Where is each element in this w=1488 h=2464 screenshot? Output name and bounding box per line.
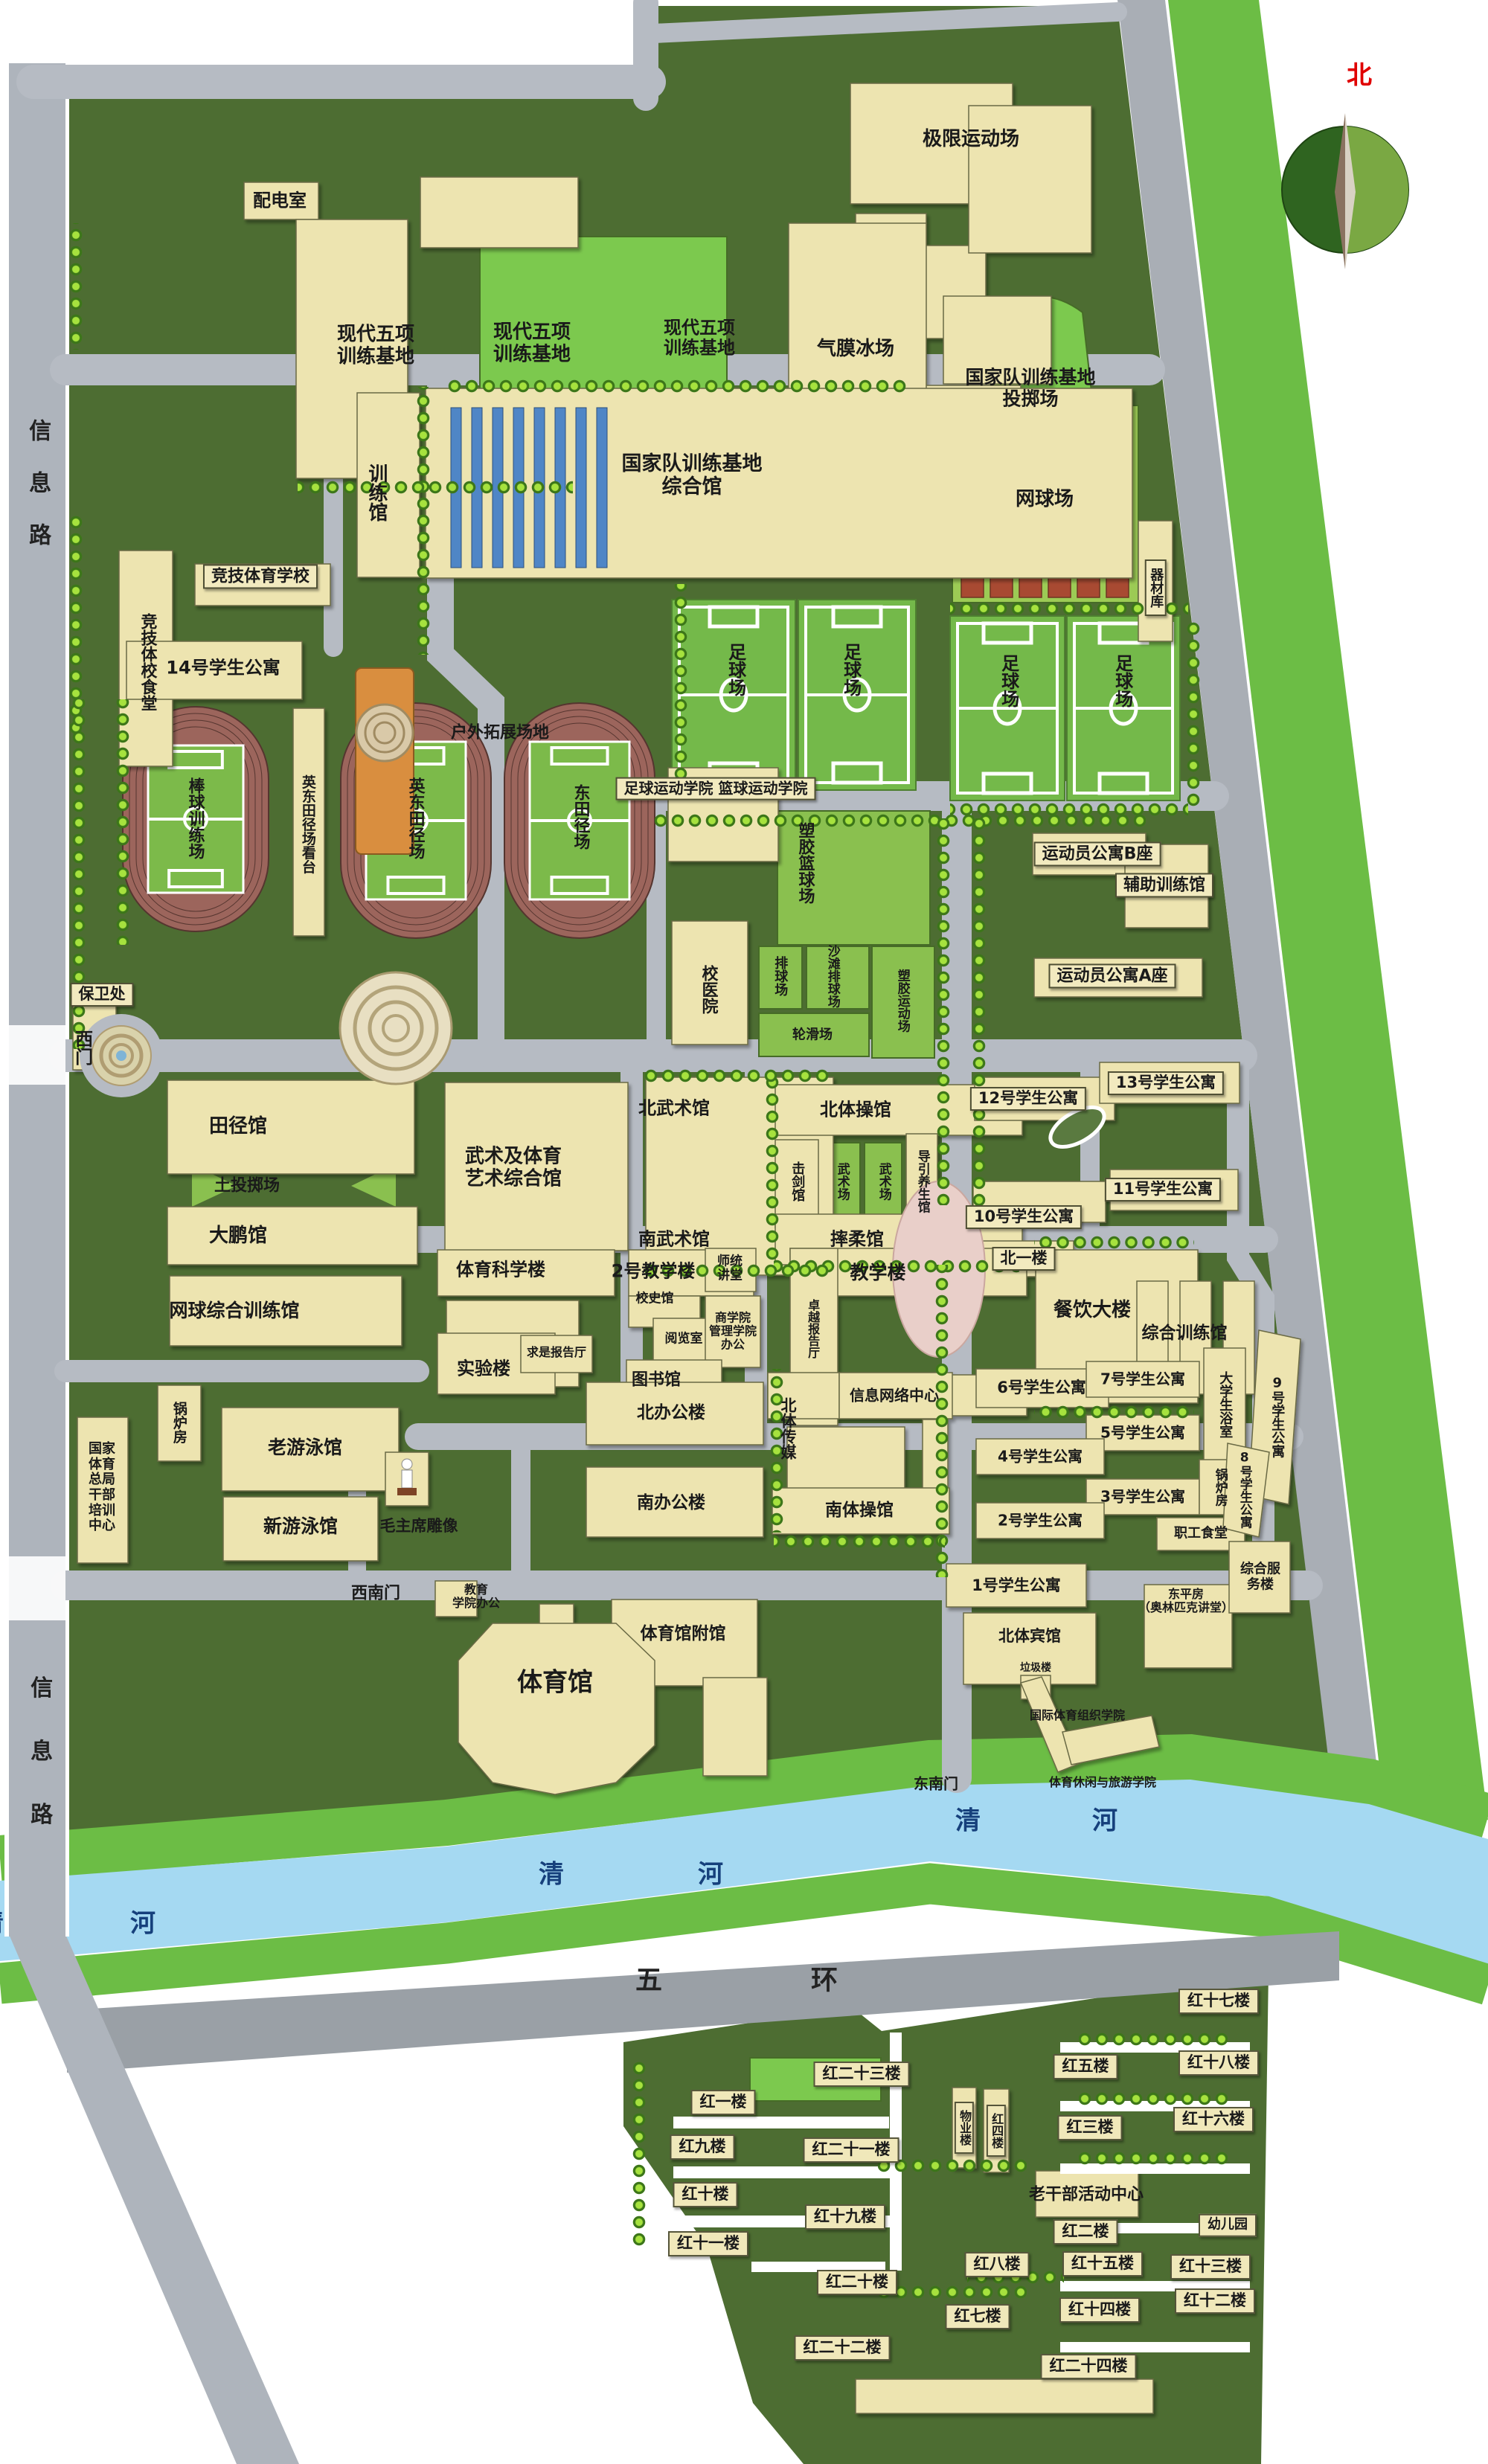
tree-row — [1034, 1235, 1194, 1250]
hong3-lou-label: 红三楼 — [1058, 2115, 1123, 2140]
hong16-lou-label: 红十六楼 — [1173, 2107, 1254, 2132]
tree-row — [934, 1265, 949, 1577]
guojiadui-zongheguan-label: 国家队训练基地 综合馆 — [622, 453, 763, 499]
yuelanshi-label: 阅览室 — [665, 1332, 703, 1346]
tree-row — [774, 1534, 945, 1549]
qiushi-baogaoting-label: 求是报告厅 — [527, 1346, 586, 1359]
xunlianguan-label: 训练馆 — [365, 463, 387, 522]
no9-gongyu-label: 9号学生公寓 — [1269, 1376, 1285, 1458]
no4-gongyu-label: 4号学生公寓 — [998, 1448, 1083, 1466]
zhigong-shitang-label: 职工食堂 — [1174, 1527, 1228, 1542]
hong4-lou-label: 红四楼 — [987, 2105, 1006, 2157]
amphitheater — [340, 972, 452, 1084]
bei-bangonglou-label: 北办公楼 — [637, 1403, 705, 1422]
tree-row — [1079, 2152, 1228, 2165]
tree-row — [936, 818, 951, 1205]
yingdong-kantai-label: 英东田径场看台 — [299, 775, 315, 874]
wuyelou-label: 物业楼 — [955, 2102, 974, 2154]
qimo-bingchang-label: 气膜冰场 — [817, 339, 894, 361]
fuzhu-xunlianguan-label: 辅助训练馆 — [1115, 873, 1213, 897]
bei-ticaoguan-label: 北体操馆 — [820, 1100, 891, 1120]
climbing-wall — [356, 668, 414, 854]
hong20-lou-label: 红二十楼 — [817, 2270, 897, 2295]
nan-wushuguan-label: 南武术馆 — [638, 1229, 710, 1249]
tree-row — [673, 584, 688, 792]
dapengguan-label: 大鹏馆 — [209, 1225, 267, 1248]
hong14-lou-label: 红十四楼 — [1059, 2297, 1140, 2323]
ganbu-peixun-zhongxin-label: 国家体育总局干部培训中心 — [84, 1442, 120, 1534]
shiyanlou-label: 实验楼 — [457, 1358, 510, 1379]
youeryuan-label: 幼儿园 — [1199, 2214, 1257, 2237]
jingji-tiyu-xuexiao-label: 竞技体育学校 — [203, 564, 318, 588]
hong8-lou-label: 红八楼 — [965, 2252, 1030, 2277]
beiti-binguan-label: 北体宾馆 — [998, 1628, 1061, 1646]
tree-row — [446, 378, 908, 394]
tree-row — [765, 1075, 780, 1261]
xinxilu-north-label: 信息路 — [25, 419, 50, 575]
bei-wushuguan-label: 北武术馆 — [638, 1098, 710, 1118]
hong9-lou-label: 红九楼 — [670, 2134, 735, 2160]
xiaoshiguan-label: 校史馆 — [636, 1292, 674, 1306]
hong19-lou-label: 红十九楼 — [805, 2204, 885, 2230]
tree-row — [878, 2285, 1027, 2299]
canyin-dalou-label: 餐饮大楼 — [1054, 1300, 1131, 1322]
shatan-paiqiuchang-label: 沙滩排球场 — [824, 945, 838, 1008]
hong12-lou-label: 红十二楼 — [1175, 2288, 1255, 2314]
beiti-chuanmei-label: 北体传媒 — [778, 1397, 796, 1460]
baoweichu-label: 保卫处 — [71, 983, 134, 1007]
zonghe-fuwulou-label: 综合服 务楼 — [1240, 1562, 1280, 1592]
compass-north-label: 北 — [1347, 62, 1372, 91]
wushuchang-1-label: 武术场 — [834, 1163, 848, 1201]
no12-gongyu-label: 12号学生公寓 — [970, 1087, 1086, 1111]
wushuchang-2-label: 武术场 — [876, 1163, 890, 1201]
qinghe-mid-label: 清河 — [539, 1861, 857, 1890]
tianjingguan-label: 田径馆 — [209, 1116, 267, 1138]
no2-gongyu-label: 2号学生公寓 — [998, 1512, 1083, 1530]
wangqiu-zonghe-xunlianguan-label: 网球综合训练馆 — [169, 1300, 299, 1322]
sujiao-yundongchang-label: 塑胶运动场 — [894, 969, 908, 1033]
hong15-lou-label: 红十五楼 — [1062, 2251, 1143, 2277]
hong1-lou-label: 红一楼 — [691, 2090, 756, 2115]
hong10-lou-label: 红十楼 — [673, 2182, 738, 2207]
tiyu-kexuelou-label: 体育科学楼 — [456, 1260, 545, 1280]
hong5-lou-label: 红五楼 — [1054, 2054, 1118, 2079]
lajilou-label: 垃圾楼 — [1020, 1663, 1051, 1675]
dong-tianjingchang-label: 东田径场 — [571, 784, 589, 850]
sujiao-lanqiuchang-label: 塑胶篮球场 — [795, 822, 814, 904]
qinghe-west-label: 清河 — [0, 1910, 282, 1939]
xiandai-wuxiang-left-label: 现代五项 训练基地 — [337, 324, 414, 368]
guoji-tiyu-zuzhi-xueyuan-label: 国际体育组织学院 — [1030, 1709, 1125, 1722]
tree-row — [415, 387, 432, 655]
hong23-lou-label: 红二十三楼 — [814, 2062, 910, 2087]
hong7-lou-label: 红七楼 — [946, 2304, 1010, 2329]
tiyu-xiuxian-luyou-xueyuan-label: 体育休闲与旅游学院 — [1049, 1776, 1156, 1789]
jingji-tixiao-shitang-label: 竞技体校食堂 — [138, 613, 156, 711]
dongnan-men-label: 东南门 — [914, 1776, 958, 1793]
tu-touzhichang-label: 土投掷场 — [214, 1176, 280, 1195]
xinxi-wangluo-zhongxin-label: 信息网络中心 — [850, 1387, 939, 1405]
yingdong-tianjingchang-label: 英东田径场 — [405, 777, 424, 859]
guolufang-west-label: 锅炉房 — [170, 1402, 187, 1444]
zuqiuchang-1-label: 足球场 — [725, 643, 745, 696]
hong24-lou-label: 红二十四楼 — [1041, 2354, 1137, 2379]
xin-youyongguan-label: 新游泳馆 — [263, 1516, 338, 1538]
no2-jiaoxuelou-label: 2号教学楼 — [612, 1261, 696, 1281]
jiaoyu-xueyuan-bangong-label: 教育 学院办公 — [452, 1583, 500, 1610]
laoganbu-huodong-zhongxin-label: 老干部活动中心 — [1029, 2185, 1144, 2204]
zhuoyue-baogaoting-label: 卓越报告厅 — [806, 1299, 819, 1358]
tree-row — [1079, 2092, 1228, 2105]
bangqiu-xunlianchang-label: 棒球训练场 — [185, 777, 204, 859]
hong18-lou-label: 红十八楼 — [1178, 2050, 1259, 2076]
bei-yi-lou-label: 北一楼 — [992, 1247, 1056, 1271]
no1-gongyu-label: 1号学生公寓 — [972, 1577, 1061, 1595]
no5-gongyu-label: 5号学生公寓 — [1100, 1425, 1185, 1442]
no3-gongyu-label: 3号学生公寓 — [1100, 1489, 1185, 1506]
tiyuguan-fuguan-label: 体育馆附馆 — [641, 1624, 726, 1643]
tree-row — [1186, 621, 1201, 807]
shuairouguan-label: 摔柔馆 — [830, 1229, 884, 1249]
xiandai-wuxiang-right-label: 现代五项 训练基地 — [664, 318, 735, 359]
yundongyuan-gongyu-a-label: 运动员公寓A座 — [1048, 963, 1176, 988]
daoyin-yangshengguan-label: 导引养生馆 — [914, 1150, 929, 1213]
no14-gongyu-label: 14号学生公寓 — [166, 658, 280, 678]
lunhuachang-label: 轮滑场 — [792, 1028, 833, 1044]
peidianshi-label: 配电室 — [253, 190, 307, 211]
tushuguan-label: 图书馆 — [632, 1370, 681, 1389]
hong17-lou-label: 红十七楼 — [1178, 1989, 1259, 2014]
no10-gongyu-label: 10号学生公寓 — [966, 1205, 1082, 1229]
xinxilu-south-label: 信息路 — [26, 1676, 51, 1866]
xinan-men-label: 西南门 — [351, 1584, 400, 1602]
jijianguan-label: 击剑馆 — [789, 1161, 805, 1201]
xinxi-road — [9, 63, 65, 1937]
maozhuxi-diaoxiang-label: 毛主席雕像 — [380, 1518, 458, 1536]
no11-gongyu-label: 11号学生公寓 — [1105, 1178, 1221, 1201]
hong13-lou-label: 红十三楼 — [1170, 2254, 1251, 2279]
wushu-yishu-zongheguan-label: 武术及体育 艺术综合馆 — [465, 1146, 562, 1190]
no7-gongyu-label: 7号学生公寓 — [1100, 1371, 1185, 1388]
hong22-lou-label: 红二十二楼 — [795, 2335, 891, 2361]
guojiadui-touzhichang-label: 国家队训练基地 投掷场 — [965, 368, 1095, 410]
shitong-jiangtang-label: 师统 讲堂 — [717, 1255, 743, 1284]
tree-row — [632, 2061, 646, 2247]
tree-row — [972, 818, 987, 1205]
tree-row — [298, 480, 573, 495]
campus-map: 配电室现代五项 训练基地现代五项 训练基地现代五项 训练基地极限运动场气膜冰场国… — [0, 0, 1488, 2464]
wangqiuchang-label: 网球场 — [1016, 489, 1074, 511]
xiandai-wuxiang-mid-label: 现代五项 训练基地 — [493, 321, 571, 365]
tree-row — [644, 1068, 830, 1083]
qinghe-east-label: 清河 — [955, 1807, 1229, 1836]
wuhuan-label: 五环 — [635, 1965, 987, 1995]
tree-row — [878, 2159, 1027, 2172]
yundongyuan-gongyu-b-label: 运动员公寓B座 — [1034, 841, 1161, 866]
tree-row — [950, 802, 1188, 817]
zuqiuchang-3-label: 足球场 — [998, 654, 1018, 708]
lao-youyongguan-label: 老游泳馆 — [268, 1437, 342, 1459]
nan-bangonglou-label: 南办公楼 — [637, 1493, 705, 1512]
tree-row — [1034, 1405, 1194, 1419]
tree-row — [68, 223, 83, 350]
zuqiuchang-4-label: 足球场 — [1112, 654, 1132, 708]
compass — [1282, 113, 1408, 269]
huwai-tuozhan-label: 户外拓展场地 — [451, 723, 549, 742]
zonghe-xunlianguan-2-label: 综合训练馆 — [1142, 1324, 1228, 1343]
tree-row — [1079, 2033, 1228, 2046]
paiqiuchang-label: 排球场 — [772, 956, 788, 996]
ximen-label: 西门 — [71, 1030, 92, 1065]
daxuesheng-yushi-label: 大学生浴室 — [1217, 1371, 1233, 1438]
hong21-lou-label: 红二十一楼 — [804, 2137, 899, 2163]
qicaiku-label: 器材库 — [1145, 559, 1167, 616]
shangxueyuan-bangong-label: 商学院 管理学院 办公 — [709, 1312, 757, 1353]
jixian-yundongchang-label: 极限运动场 — [923, 129, 1019, 151]
xiao-yiyuan-label: 校医院 — [699, 965, 717, 1014]
guolufang-east-label: 锅炉房 — [1212, 1469, 1226, 1507]
hong11-lou-label: 红十一楼 — [668, 2231, 748, 2256]
hong2-lou-label: 红二楼 — [1054, 2219, 1118, 2245]
tiyuguan-label: 体育馆 — [517, 1669, 593, 1698]
zuqiuchang-2-label: 足球场 — [840, 643, 860, 696]
zuqiu-lanqiu-xueyuan-label: 足球运动学院 篮球运动学院 — [616, 777, 816, 801]
jiaoxuelou-label: 教学楼 — [850, 1263, 905, 1284]
no8-gongyu-label: 8号学生公寓 — [1237, 1451, 1251, 1529]
no6-gongyu-label: 6号学生公寓 — [997, 1379, 1086, 1397]
nan-ticaoguan-label: 南体操馆 — [825, 1501, 894, 1520]
tree-row — [115, 699, 130, 945]
no13-gongyu-label: 13号学生公寓 — [1108, 1071, 1224, 1095]
dongpingfang-label: 东平房 （奥林匹克讲堂） — [1138, 1588, 1234, 1614]
